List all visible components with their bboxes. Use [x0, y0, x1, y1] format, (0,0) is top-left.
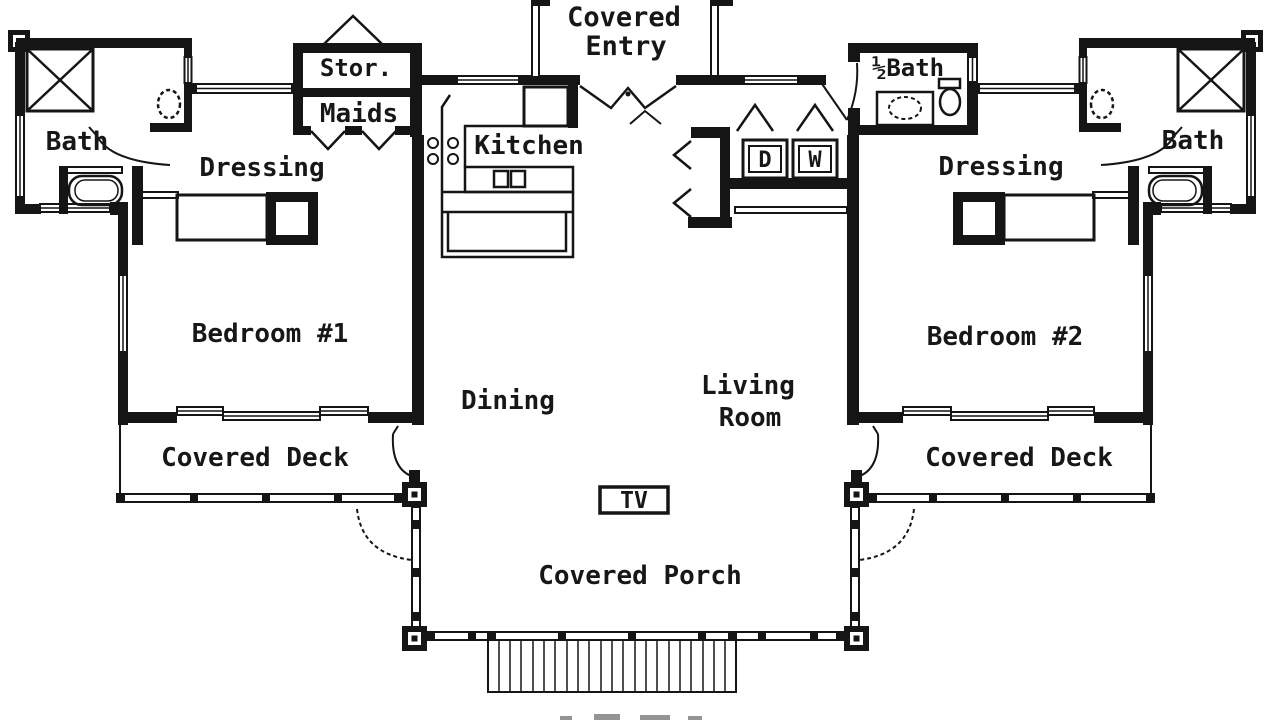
bifold-door-icon — [674, 141, 691, 169]
louver-door-icon — [362, 131, 396, 149]
kitchen-walls — [420, 75, 580, 128]
room-label-bath-left: Bath — [46, 127, 109, 157]
room-label-half-bath: ½Bath — [872, 54, 944, 82]
room-label-living-2: Room — [719, 403, 782, 433]
roof-peak-line — [630, 111, 661, 124]
half-bath-toilet-icon — [939, 79, 960, 115]
bifold-door-icon — [797, 105, 833, 131]
bifold-door-icon — [674, 189, 691, 217]
room-label-bedroom1: Bedroom #1 — [192, 319, 349, 349]
shelf-line — [735, 207, 847, 213]
porch-stairs — [488, 632, 736, 692]
floor-plan-page: Covered Entry Stor. Maids Kitchen Bath B… — [0, 0, 1280, 720]
room-label-covered-porch: Covered Porch — [538, 561, 742, 591]
room-label-maids: Maids — [320, 99, 398, 129]
half-bath-sink-icon — [877, 92, 933, 125]
entry-double-door-icon — [580, 86, 676, 108]
room-label-covered-deck-left: Covered Deck — [161, 443, 349, 473]
room-label-bath-right: Bath — [1162, 126, 1225, 156]
room-label-covered-deck-right: Covered Deck — [925, 443, 1113, 473]
room-label-living-1: Living — [701, 371, 795, 401]
sink-icon — [494, 171, 508, 187]
room-label-covered-entry-2: Entry — [585, 31, 666, 62]
tv-label: TV — [620, 488, 648, 514]
room-label-dressing-left: Dressing — [199, 153, 324, 183]
room-label-bedroom2: Bedroom #2 — [927, 322, 1084, 352]
room-label-dressing-right: Dressing — [938, 152, 1063, 182]
washer-label: W — [808, 148, 822, 173]
hall-closet — [630, 111, 732, 228]
room-label-storage: Stor. — [320, 54, 392, 82]
floor-plan-canvas: Covered Entry Stor. Maids Kitchen Bath B… — [0, 0, 1280, 720]
room-label-dining: Dining — [461, 386, 555, 416]
roof-peak-line — [324, 16, 382, 44]
kitchen-counter — [442, 95, 573, 257]
dryer-label: D — [758, 148, 771, 173]
room-label-kitchen: Kitchen — [474, 131, 584, 161]
laundry-area — [730, 105, 848, 213]
bifold-door-icon — [737, 105, 773, 131]
room-label-covered-entry-1: Covered — [567, 2, 681, 33]
louver-door-icon — [311, 131, 345, 149]
refrigerator-icon — [524, 87, 568, 126]
sink-icon — [511, 171, 525, 187]
cropped-text-fragment — [560, 714, 702, 720]
storage-maids-walls — [293, 16, 422, 149]
